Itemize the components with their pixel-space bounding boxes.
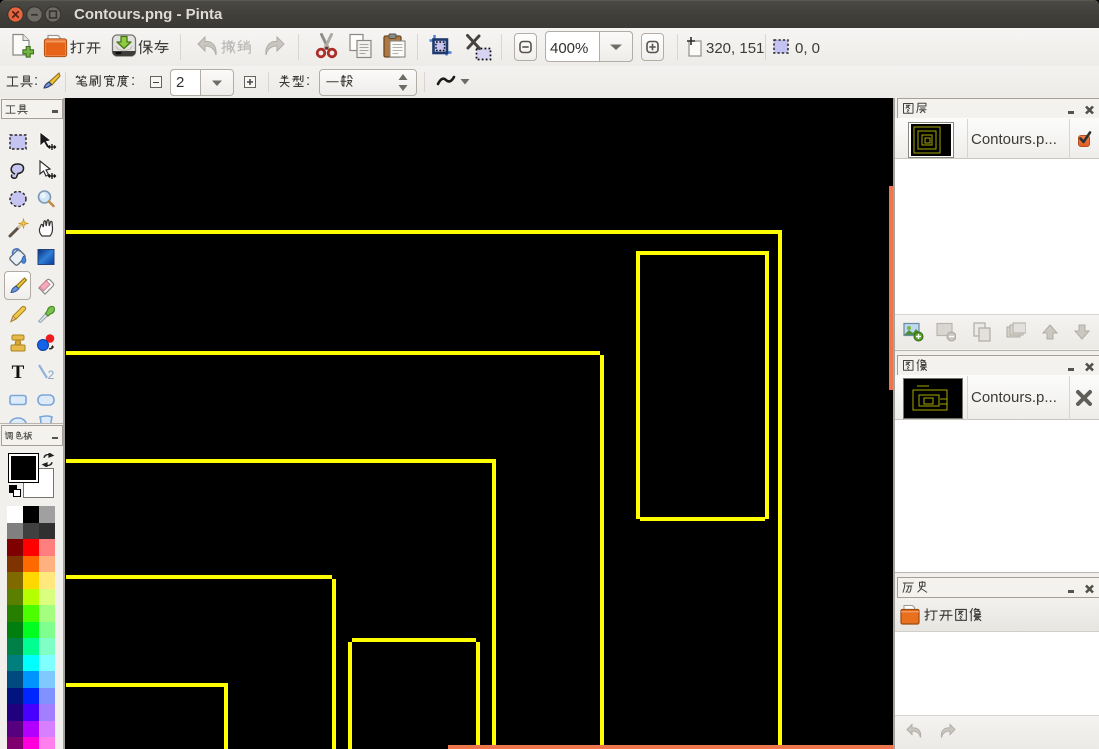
svg-text:2: 2: [47, 368, 54, 382]
svg-text:T: T: [11, 362, 24, 383]
